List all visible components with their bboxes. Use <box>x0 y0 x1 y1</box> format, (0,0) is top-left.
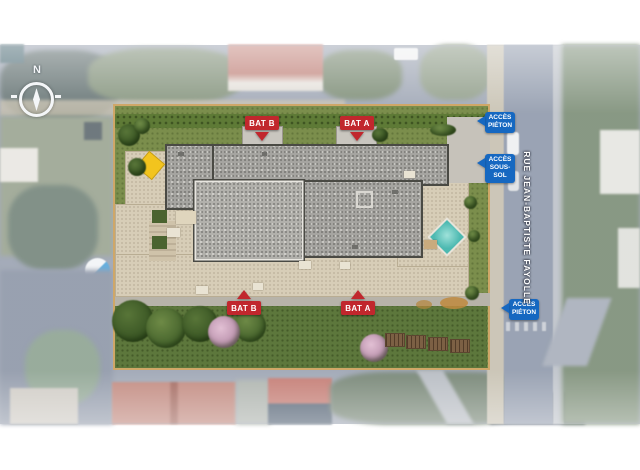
roof-vent <box>392 190 398 194</box>
street-name-label: RUE JEAN-BAPTISTE FAYOLLE <box>522 151 532 305</box>
site-plan-image[interactable]: BAT B BAT A BAT B BAT A ACCÈS PIÉTON ACC… <box>0 0 640 470</box>
access-label-line: ACCÈS <box>485 156 515 164</box>
shrub <box>128 158 146 176</box>
planter <box>152 210 167 223</box>
patio-table <box>424 240 437 249</box>
bat-b-marker-bottom: BAT B <box>227 301 261 315</box>
bat-a-arrow-down-icon <box>350 132 364 141</box>
compass-needle-icon <box>31 88 42 111</box>
garden-plot <box>451 340 469 352</box>
planter <box>152 236 167 249</box>
flower-bed <box>416 300 432 309</box>
access-arrow-left-icon <box>501 303 509 313</box>
compass-north-label: N <box>28 64 46 76</box>
building-roof-bat-b <box>196 182 302 259</box>
blossom-tree <box>360 334 388 362</box>
roof-vent <box>262 152 267 156</box>
patio-furniture <box>340 262 350 269</box>
compass-tick <box>11 95 17 98</box>
compass-tick <box>55 95 61 98</box>
patio-furniture <box>404 171 415 178</box>
access-label-line: ACCÈS <box>485 114 515 122</box>
garden-plot <box>386 334 404 346</box>
access-label-line: PIÉTON <box>509 309 539 317</box>
shrub <box>430 124 456 136</box>
access-sous-sol-marker: ACCÈS SOUS-SOL <box>485 154 515 183</box>
patio-furniture <box>253 283 263 290</box>
bat-b-arrow-down-icon <box>255 132 269 141</box>
shrub <box>468 230 480 242</box>
garden-plot <box>407 336 425 348</box>
patio-furniture <box>167 228 180 237</box>
blossom-tree <box>208 316 240 348</box>
shrub <box>464 196 477 209</box>
tree <box>134 118 150 134</box>
pergola <box>176 211 196 224</box>
access-pieton-marker: ACCÈS PIÉTON <box>485 112 515 133</box>
patio-furniture <box>196 286 208 294</box>
patio-furniture <box>299 261 311 269</box>
bat-b-marker-top: BAT B <box>245 116 279 130</box>
bat-a-marker-top: BAT A <box>340 116 374 130</box>
bat-a-marker-bottom: BAT A <box>341 301 375 315</box>
access-arrow-left-icon <box>477 158 485 168</box>
roof-skylight <box>356 191 373 208</box>
roof-vent <box>352 245 358 249</box>
shrub <box>372 128 388 142</box>
garden-plot <box>429 338 447 350</box>
access-label-line: PIÉTON <box>485 122 515 130</box>
bat-b-arrow-up-icon <box>237 290 251 299</box>
access-label-line: SOUS-SOL <box>485 164 515 180</box>
access-arrow-left-icon <box>477 116 485 126</box>
shrub <box>465 286 479 300</box>
bat-a-arrow-up-icon <box>351 290 365 299</box>
flower-bed <box>440 297 468 309</box>
roof-vent <box>178 152 184 156</box>
tree <box>146 308 186 348</box>
compass-icon <box>19 82 54 117</box>
